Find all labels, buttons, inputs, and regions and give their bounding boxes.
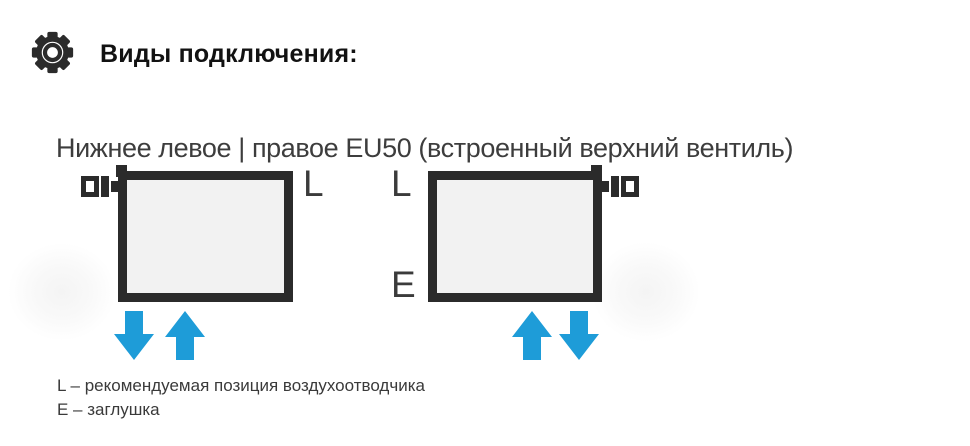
legend-line-plug: E – заглушка — [57, 398, 425, 422]
connection-type-subtitle: Нижнее левое | правое EU50 (встроенный в… — [56, 133, 793, 164]
gear-icon — [29, 30, 76, 75]
flow-arrow-down-icon — [559, 311, 599, 360]
section-title: Виды подключения: — [100, 40, 358, 69]
background-blob — [8, 243, 116, 341]
valve-icon-right — [611, 176, 619, 197]
page: Виды подключения: Нижнее левое | правое … — [0, 0, 970, 446]
valve-icon-left — [101, 176, 109, 197]
plug-label-right-radiator: E — [391, 266, 416, 303]
radiator-diagram-right — [428, 171, 602, 302]
flow-arrow-down-icon — [114, 311, 154, 360]
valve-icon-right — [602, 181, 609, 192]
legend: L – рекомендуемая позиция воздухоотводчи… — [57, 374, 425, 422]
valve-icon-right — [621, 176, 639, 197]
radiator-diagram-left — [118, 171, 293, 302]
valve-icon-right — [591, 165, 602, 177]
legend-line-air-vent: L – рекомендуемая позиция воздухоотводчи… — [57, 374, 425, 398]
valve-icon-left — [116, 165, 127, 177]
flow-arrow-up-icon — [512, 311, 552, 360]
valve-icon-left — [111, 181, 118, 192]
air-vent-label-right-radiator: L — [391, 165, 412, 202]
valve-icon-left — [81, 176, 99, 197]
air-vent-label-left-radiator: L — [303, 165, 324, 202]
background-blob — [592, 242, 700, 342]
flow-arrow-up-icon — [165, 311, 205, 360]
